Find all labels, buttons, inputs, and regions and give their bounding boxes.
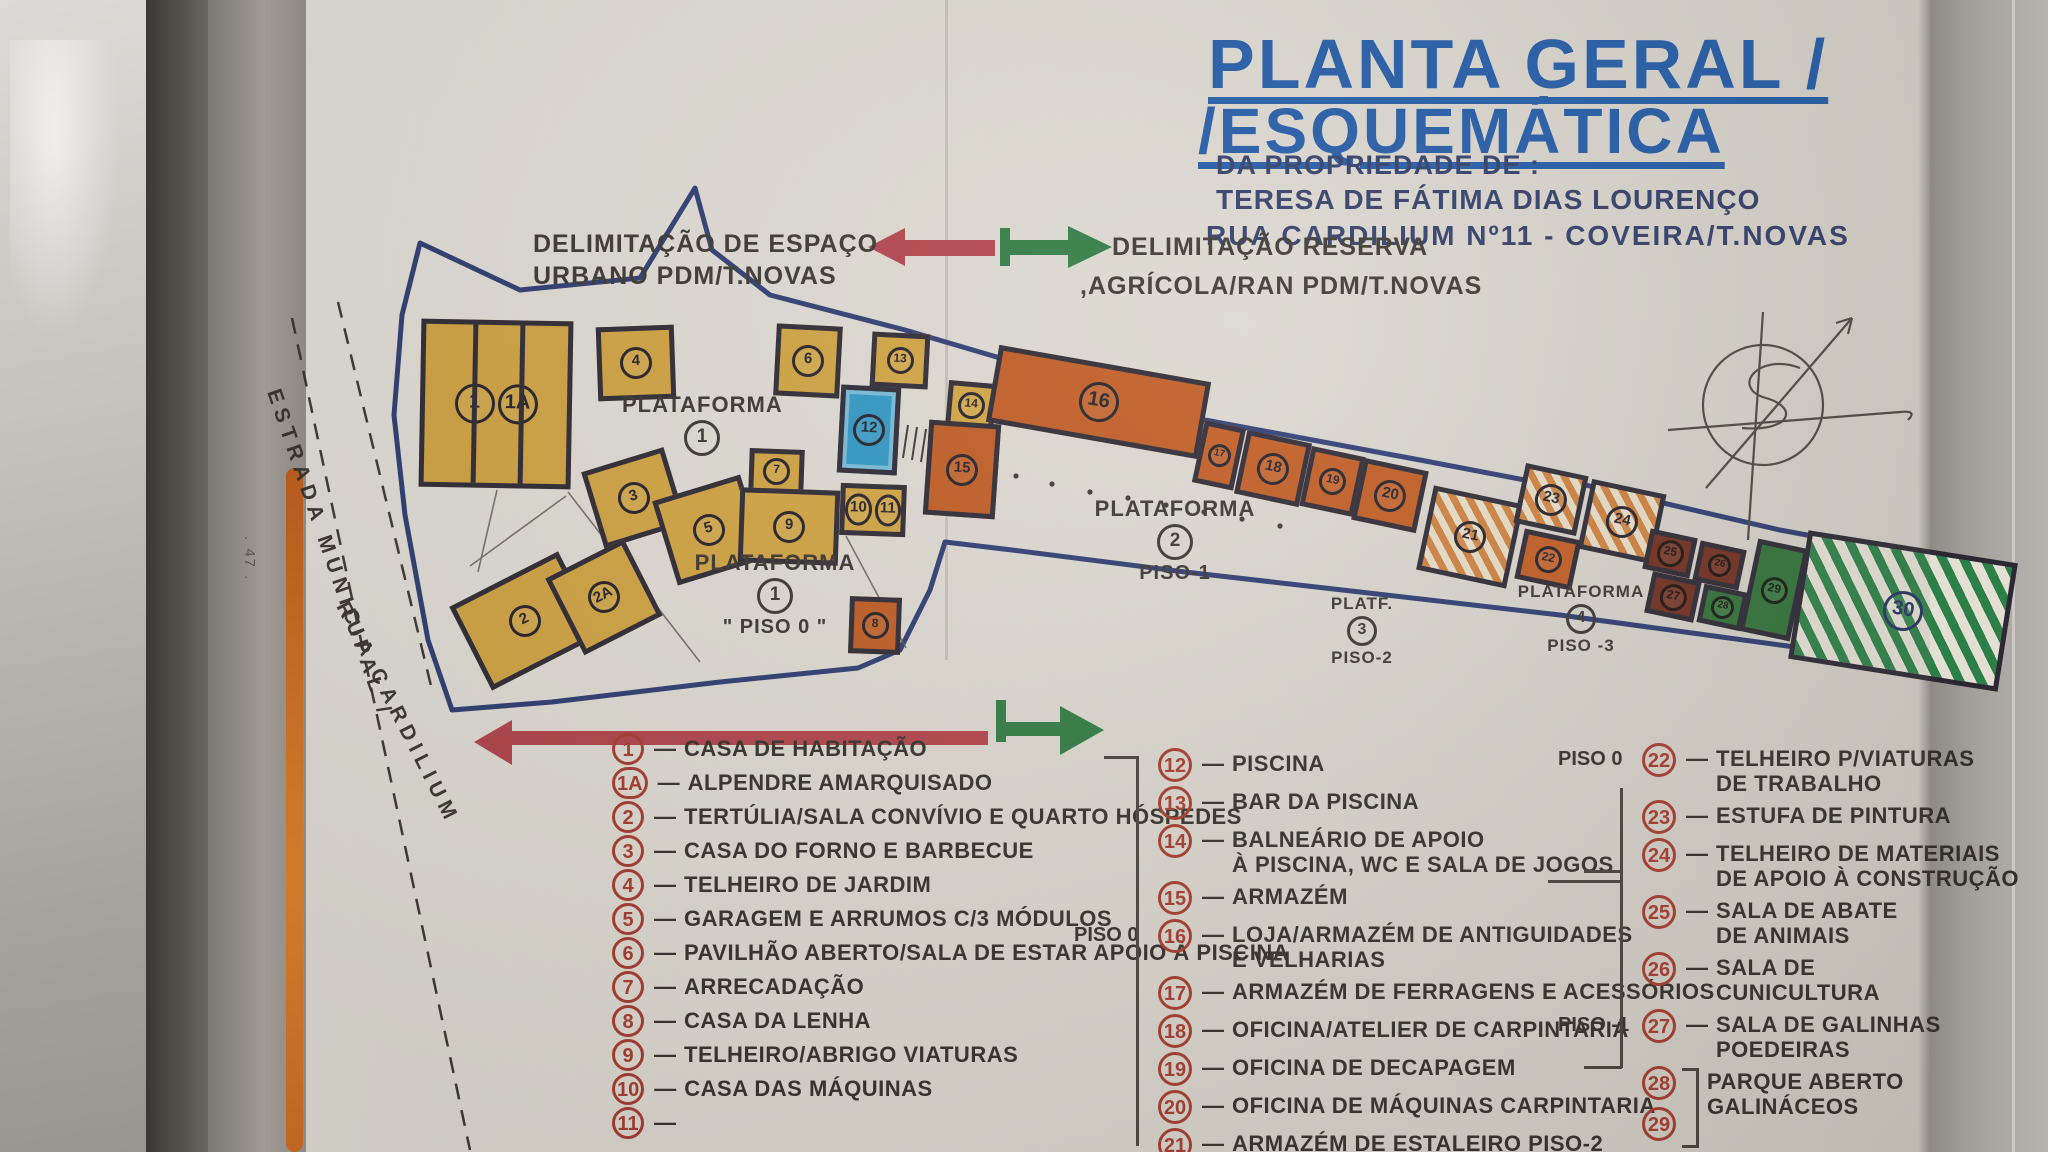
legend-text: TELHEIRO/ABRIGO VIATURAS xyxy=(684,1039,1018,1067)
dash: — xyxy=(1686,841,1708,867)
map-building-number: 25 xyxy=(1654,537,1686,569)
map-building-number: 2A xyxy=(582,575,625,618)
map-building-number: 17 xyxy=(1205,442,1232,469)
legend-text: SALA DE GALINHASPOEDEIRAS xyxy=(1716,1009,1941,1062)
legend-text-line: TELHEIRO DE MATERIAIS xyxy=(1716,841,2019,866)
legend-text-line: DE APOIO À CONSTRUÇÃO xyxy=(1716,866,2019,891)
dash: — xyxy=(1686,898,1708,924)
legend-item-24: 24—TELHEIRO DE MATERIAISDE APOIO À CONST… xyxy=(1642,838,1982,891)
legend-number: 1A xyxy=(612,767,648,799)
map-building-21: 21 xyxy=(1416,485,1524,588)
legend-text: TELHEIRO DE JARDIM xyxy=(684,869,931,897)
legend-text-line: GALINÁCEOS xyxy=(1707,1094,1904,1119)
legend-number: 28 xyxy=(1642,1066,1676,1100)
bracket-icon xyxy=(1682,1068,1699,1148)
legend-text-line: SALA DE ABATE xyxy=(1716,898,1898,923)
map-building-number: 24 xyxy=(1603,503,1641,541)
legend-text: PISCINA xyxy=(1232,748,1325,776)
dash: — xyxy=(1686,746,1708,772)
dash: — xyxy=(654,1042,676,1068)
platform-name: PLATAFORMA xyxy=(690,550,860,576)
legend-number: 15 xyxy=(1158,881,1192,915)
legend-text: CASA DE HABITAÇÃO xyxy=(684,733,927,761)
legend-text: ESTUFA DE PINTURA xyxy=(1716,800,1951,828)
map-building-number: 8 xyxy=(861,612,889,640)
bracket-tick-col3-c xyxy=(1584,1066,1622,1069)
legend-text: ALPENDRE AMARQUISADO xyxy=(688,767,993,795)
paper-crease xyxy=(945,0,948,660)
dash: — xyxy=(1202,789,1224,815)
dash: — xyxy=(1202,979,1224,1005)
legend-text: ARMAZÉM xyxy=(1232,881,1348,909)
legend-text-line: TELHEIRO P/VIATURAS xyxy=(1716,746,1974,771)
legend-text-line: ARMAZÉM DE ESTALEIRO PISO-2 xyxy=(1232,1131,1603,1152)
legend-text-line: DE ANIMAIS xyxy=(1716,923,1898,948)
agric-reserve-label-line2: ,AGRÍCOLA/RAN PDM/T.NOVAS xyxy=(1080,272,1482,301)
platform-name: PLATAFORMA xyxy=(1506,582,1656,602)
legend-number: 17 xyxy=(1158,976,1192,1010)
map-building-number: 7 xyxy=(763,458,791,486)
legend-number: 21 xyxy=(1158,1128,1192,1152)
legend-item-26: 26—SALA DECUNICULTURA xyxy=(1642,952,1982,1005)
legend-number: 9 xyxy=(612,1039,644,1071)
map-building-number: 14 xyxy=(956,391,985,420)
map-building-number: 15 xyxy=(945,452,979,486)
platform-number: 4 xyxy=(1566,604,1596,634)
bracket-tick-col2 xyxy=(1104,756,1139,759)
map-building-number: 13 xyxy=(886,346,914,374)
legend-text-line: PARQUE ABERTO xyxy=(1707,1069,1904,1094)
map-building-number: 30 xyxy=(1880,588,1926,634)
legend-text: CASA DAS MÁQUINAS xyxy=(684,1073,932,1101)
map-building-number: 11 xyxy=(874,494,902,527)
legend-number: 7 xyxy=(612,971,644,1003)
legend-number: 29 xyxy=(1642,1107,1676,1141)
platform-name: PLATAFORMA xyxy=(1090,496,1260,522)
map-building-number: 12 xyxy=(852,413,886,447)
legend-text: OFICINA DE DECAPAGEM xyxy=(1232,1052,1516,1080)
legend-text: OFICINA DE MÁQUINAS CARPINTARIA xyxy=(1232,1090,1656,1118)
owner-name: TERESA DE FÁTIMA DIAS LOURENÇO xyxy=(1216,184,1760,216)
binder-orange-strip xyxy=(286,468,303,1152)
map-building-number: 10 xyxy=(844,493,872,526)
legend-item-19: 19—OFICINA DE DECAPAGEM xyxy=(1158,1052,1628,1086)
legend-column-2: 12—PISCINA13—BAR DA PISCINA14—BALNEÁRIO … xyxy=(1158,748,1628,1152)
legend-text-line: OFICINA DE DECAPAGEM xyxy=(1232,1055,1516,1080)
legend-item-17: 17—ARMAZÉM DE FERRAGENS E ACESSÓRIOS xyxy=(1158,976,1628,1010)
legend-text: CASA DO FORNO E BARBECUE xyxy=(684,835,1034,863)
dash: — xyxy=(1202,827,1224,853)
piso-label: PISO 0 xyxy=(1558,748,1622,771)
platform-piso: " PISO 0 " xyxy=(690,616,860,639)
map-building-number: 28 xyxy=(1709,594,1736,621)
legend-item-23: 23—ESTUFA DE PINTURA xyxy=(1642,800,1982,834)
legend-text-line: PISCINA xyxy=(1232,751,1325,776)
legend-text: GARAGEM E ARRUMOS C/3 MÓDULOS xyxy=(684,903,1112,931)
legend-text-line: LOJA/ARMAZÉM DE ANTIGUIDADES xyxy=(1232,922,1633,947)
map-building-number: 4 xyxy=(619,346,652,379)
map-building-4: 4 xyxy=(596,325,677,402)
legend-text-line: CASA DE HABITAÇÃO xyxy=(684,736,927,761)
bracket-tick-col3-b xyxy=(1548,880,1622,883)
legend-text-line: CASA DA LENHA xyxy=(684,1008,871,1033)
legend-number: 16 xyxy=(1158,919,1192,953)
legend-text: TELHEIRO P/VIATURASDE TRABALHO xyxy=(1716,743,1974,796)
legend-item-2: 2—TERTÚLIA/SALA CONVÍVIO E QUARTO HÓSPED… xyxy=(612,801,1192,833)
legend-item-22: PISO 022—TELHEIRO P/VIATURASDE TRABALHO xyxy=(1642,743,1982,796)
platform-number: 1 xyxy=(684,420,720,456)
legend-number: 27 xyxy=(1642,1009,1676,1043)
legend-number: 10 xyxy=(612,1073,644,1105)
legend-text-line: BAR DA PISCINA xyxy=(1232,789,1419,814)
map-building-number: 9 xyxy=(772,510,805,543)
platform-label-4: PLATAFORMA4PISO -3 xyxy=(1506,582,1656,656)
photo-of-hand-drawn-site-plan: . 47 . xyxy=(0,0,2048,1152)
dash: — xyxy=(1686,955,1708,981)
legend-number-pair: 2829 xyxy=(1642,1066,1676,1141)
piso-label: PISO 0 xyxy=(1074,924,1138,947)
legend-number: 25 xyxy=(1642,895,1676,929)
legend-text-line: SALA DE xyxy=(1716,955,1880,980)
urban-limit-label-line1: DELIMITAÇÃO DE ESPAÇO xyxy=(533,230,878,259)
map-building-number: 6 xyxy=(791,344,825,378)
legend-number: 8 xyxy=(612,1005,644,1037)
dash: — xyxy=(654,906,676,932)
dash: — xyxy=(654,872,676,898)
legend-column-3: PISO 022—TELHEIRO P/VIATURASDE TRABALHO2… xyxy=(1642,743,1982,1152)
map-building-number: 19 xyxy=(1316,465,1348,497)
legend-text-line: GARAGEM E ARRUMOS C/3 MÓDULOS xyxy=(684,906,1112,931)
legend-item-4: 4—TELHEIRO DE JARDIM xyxy=(612,869,1192,901)
map-building-number: 20 xyxy=(1371,477,1409,515)
bracket-line-col2 xyxy=(1136,758,1139,1146)
legend-text: BAR DA PISCINA xyxy=(1232,786,1419,814)
legend-number: 3 xyxy=(612,835,644,867)
legend-text: CASA DA LENHA xyxy=(684,1005,871,1033)
map-building-number: 27 xyxy=(1657,581,1689,613)
legend-text-line: POEDEIRAS xyxy=(1716,1037,1941,1062)
platform-label-1: PLATAFORMA1 xyxy=(622,392,782,458)
map-building-number: 26 xyxy=(1706,552,1733,579)
legend-number: 2 xyxy=(612,801,644,833)
legend-item-11: 11— xyxy=(612,1107,1192,1139)
legend-text-line: SALA DE GALINHAS xyxy=(1716,1012,1941,1037)
map-building-number: 2 xyxy=(503,599,546,642)
legend-number: 22 xyxy=(1642,743,1676,777)
dash: — xyxy=(654,1076,676,1102)
legend-text-line: ARMAZÉM xyxy=(1232,884,1348,909)
dash: — xyxy=(1202,1017,1224,1043)
legend-item-20: 20—OFICINA DE MÁQUINAS CARPINTARIA xyxy=(1158,1090,1628,1124)
legend-number: 20 xyxy=(1158,1090,1192,1124)
map-building-23: 23 xyxy=(1513,463,1588,536)
dash: — xyxy=(658,770,680,796)
legend-number: 23 xyxy=(1642,800,1676,834)
legend-item-25: 25—SALA DE ABATEDE ANIMAIS xyxy=(1642,895,1982,948)
dash: — xyxy=(1202,751,1224,777)
dash: — xyxy=(654,1110,676,1136)
legend-item-8: 8—CASA DA LENHA xyxy=(612,1005,1192,1037)
legend-text: TELHEIRO DE MATERIAISDE APOIO À CONSTRUÇ… xyxy=(1716,838,2019,891)
map-building-number: 16 xyxy=(1075,379,1121,425)
legend-item-14: 14—BALNEÁRIO DE APOIOÀ PISCINA, WC E SAL… xyxy=(1158,824,1628,877)
legend-number: 26 xyxy=(1642,952,1676,986)
legend-item-3: 3—CASA DO FORNO E BARBECUE xyxy=(612,835,1192,867)
legend-number: 1 xyxy=(612,733,644,765)
dash: — xyxy=(654,736,676,762)
dash: — xyxy=(654,838,676,864)
map-building-10: 1011 xyxy=(839,483,907,537)
legend-number: 12 xyxy=(1158,748,1192,782)
legend-item-21: 21—ARMAZÉM DE ESTALEIRO PISO-2 xyxy=(1158,1128,1628,1152)
map-building-number: 23 xyxy=(1532,481,1570,519)
platform-number: 3 xyxy=(1347,616,1377,646)
legend-text-line: ALPENDRE AMARQUISADO xyxy=(688,770,993,795)
legend-number: 14 xyxy=(1158,824,1192,858)
bracket-tick-col3-a xyxy=(1584,870,1622,873)
legend-number: 4 xyxy=(612,869,644,901)
map-building-number: 5 xyxy=(689,510,729,550)
bracket-line-col3 xyxy=(1620,788,1623,1068)
legend-text-line: DE TRABALHO xyxy=(1716,771,1974,796)
legend-text: PARQUE ABERTOGALINÁCEOS xyxy=(1707,1066,1904,1119)
map-building-number: 3 xyxy=(614,478,654,518)
legend-item-9: 9—TELHEIRO/ABRIGO VIATURAS xyxy=(612,1039,1192,1071)
urban-limit-label-line2: URBANO PDM/T.NOVAS xyxy=(533,262,837,291)
dash: — xyxy=(654,974,676,1000)
dash: — xyxy=(1202,1055,1224,1081)
dash: — xyxy=(654,804,676,830)
map-building-6: 6 xyxy=(773,323,843,398)
legend-item-1: 1—CASA DE HABITAÇÃO xyxy=(612,733,1192,765)
legend-text-line: À PISCINA, WC E SALA DE JOGOS xyxy=(1232,852,1614,877)
legend-text: BALNEÁRIO DE APOIOÀ PISCINA, WC E SALA D… xyxy=(1232,824,1614,877)
legend-number: 13 xyxy=(1158,786,1192,820)
map-building-1: 11A xyxy=(419,319,574,490)
legend-number: 11 xyxy=(612,1107,644,1139)
platform-label-1: PLATAFORMA1" PISO 0 " xyxy=(690,550,860,639)
legend-text: LOJA/ARMAZÉM DE ANTIGUIDADESE VELHARIAS xyxy=(1232,919,1633,972)
map-building-13: 13 xyxy=(870,332,931,390)
platform-piso: PISO -3 xyxy=(1506,636,1656,656)
plan-title-line1: PLANTA GERAL / xyxy=(1208,24,1828,104)
dash: — xyxy=(1686,803,1708,829)
legend-text: SALA DECUNICULTURA xyxy=(1716,952,1880,1005)
legend-item-15: 15—ARMAZÉM xyxy=(1158,881,1628,915)
table-surface-left xyxy=(0,0,146,1152)
platform-piso: PISO-1 xyxy=(1090,562,1260,585)
binder-edge xyxy=(146,0,208,1152)
legend-text: ARRECADAÇÃO xyxy=(684,971,864,999)
legend-text-line: TELHEIRO DE JARDIM xyxy=(684,872,931,897)
legend-item-16: PISO 016—LOJA/ARMAZÉM DE ANTIGUIDADESE V… xyxy=(1158,919,1628,972)
legend-item-7: 7—ARRECADAÇÃO xyxy=(612,971,1192,1003)
legend-text-line: E VELHARIAS xyxy=(1232,947,1633,972)
legend-number: 6 xyxy=(612,937,644,969)
platform-name: PLATF. xyxy=(1302,594,1422,614)
platform-label-2: PLATAFORMA2PISO-1 xyxy=(1090,496,1260,585)
dash: — xyxy=(1686,1012,1708,1038)
legend-item-27: PISO -127—SALA DE GALINHASPOEDEIRAS xyxy=(1642,1009,1982,1062)
map-building-number: 21 xyxy=(1451,518,1489,556)
map-building-number: 29 xyxy=(1758,574,1790,606)
legend-item-10: 10—CASA DAS MÁQUINAS xyxy=(612,1073,1192,1105)
legend-number: 19 xyxy=(1158,1052,1192,1086)
legend-text-line: CASA DAS MÁQUINAS xyxy=(684,1076,932,1101)
dash: — xyxy=(1202,922,1224,948)
dash: — xyxy=(1202,884,1224,910)
map-building-number: 18 xyxy=(1254,450,1292,488)
legend-text: SALA DE ABATEDE ANIMAIS xyxy=(1716,895,1898,948)
platform-number: 2 xyxy=(1157,524,1193,560)
legend-text-line: ESTUFA DE PINTURA xyxy=(1716,803,1951,828)
legend-text-line: CUNICULTURA xyxy=(1716,980,1880,1005)
page-number: . 47 . xyxy=(241,536,258,581)
dash: — xyxy=(654,1008,676,1034)
legend-text-line: ARRECADAÇÃO xyxy=(684,974,864,999)
legend-text-line: OFICINA DE MÁQUINAS CARPINTARIA xyxy=(1232,1093,1656,1118)
platform-label-3: PLATF.3PISO-2 xyxy=(1302,594,1422,668)
platform-name: PLATAFORMA xyxy=(622,392,782,418)
map-building-15: 15 xyxy=(923,420,1001,520)
legend-text-line: BALNEÁRIO DE APOIO xyxy=(1232,827,1614,852)
dash: — xyxy=(1202,1093,1224,1119)
legend-text-line: CASA DO FORNO E BARBECUE xyxy=(684,838,1034,863)
legend-item-28: 2829PARQUE ABERTOGALINÁCEOS xyxy=(1642,1066,1982,1148)
agric-reserve-label-line1: DELIMITAÇÃO RESERVA xyxy=(1112,233,1428,262)
legend-item-13: 13—BAR DA PISCINA xyxy=(1158,786,1628,820)
legend-number: 5 xyxy=(612,903,644,935)
map-building-number: 22 xyxy=(1532,543,1564,575)
map-building-20: 20 xyxy=(1351,458,1429,533)
legend-text: ARMAZÉM DE ESTALEIRO PISO-2 xyxy=(1232,1128,1603,1152)
owner-label: DA PROPRIEDADE DE : xyxy=(1216,150,1540,181)
platform-piso: PISO-2 xyxy=(1302,648,1422,668)
piso-label: PISO -1 xyxy=(1558,1014,1629,1037)
legend-item-1A: 1A—ALPENDRE AMARQUISADO xyxy=(612,767,1192,799)
legend-number: 24 xyxy=(1642,838,1676,872)
map-building-12: 12 xyxy=(837,384,902,475)
platform-number: 1 xyxy=(757,578,793,614)
legend-number: 18 xyxy=(1158,1014,1192,1048)
dash: — xyxy=(1202,1131,1224,1152)
dash: — xyxy=(654,940,676,966)
legend-text-line: TELHEIRO/ABRIGO VIATURAS xyxy=(684,1042,1018,1067)
